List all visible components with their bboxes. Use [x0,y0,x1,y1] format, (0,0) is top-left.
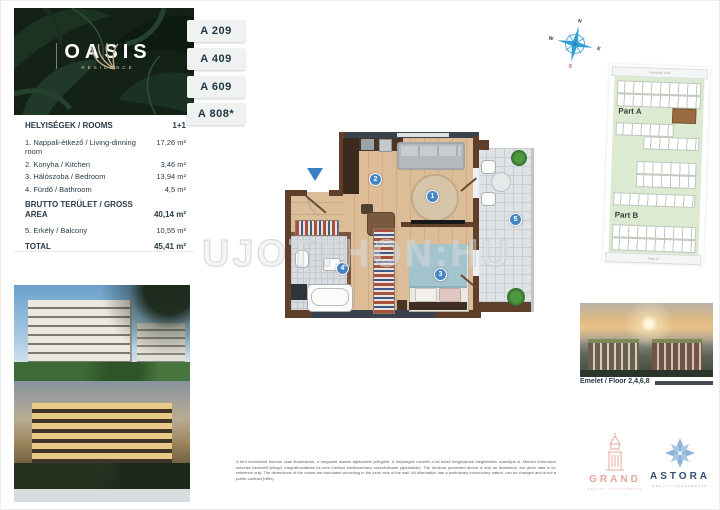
balcony-railing [531,148,534,312]
unit-tab-a808[interactable]: A 808* [187,103,245,125]
rooms-table: HELYISÉGEK / ROOMS 1+1 1. Nappali-étkező… [25,121,186,255]
compass-east: E [597,46,602,53]
room-label: 4. Fürdő / Bathroom [25,185,139,194]
tv-console [411,220,465,224]
photo-footer-strip [14,489,190,502]
aerial-render-photo [580,303,713,377]
grand-logo: GRAND REALTY INVESTMENTS [585,432,645,491]
bathtub [307,284,353,312]
balcony-table [491,172,511,192]
room-area: 3,46 m² [161,160,186,169]
building-render-photo-evening [14,381,190,489]
rooms-table-header: HELYISÉGEK / ROOMS 1+1 [25,121,186,131]
brand-header: OASIS RESIDENCE [14,8,194,115]
room-label: 3. Hálószoba / Bedroom [25,172,139,181]
compass-west: W [548,35,554,42]
balcony-area: 10,55 m² [156,226,186,235]
layout-type: 1+1 [172,121,186,131]
kitchen-cabinet-column [343,138,359,194]
plant [507,288,525,306]
astora-name: ASTORA [650,471,710,482]
room-area: 17,26 m² [156,138,186,147]
wall-entry-right [329,190,343,196]
grand-tower-icon [603,432,627,472]
balcony-row: 5. Erkély / Balcony 10,55 m² [25,226,186,235]
table-row: 1. Nappali-étkező / Living-dinning room … [25,138,186,157]
balcony-chair [481,160,496,174]
gross-area-row: BRUTTO TERÜLET / GROSS AREA 40,14 m² [25,200,186,220]
room-badge-living: 1 [426,190,439,203]
plant [511,150,527,166]
balcony-bottom-wall [477,302,533,312]
pillow [439,288,461,302]
panel-divider [14,251,194,252]
balcony-door-living [473,168,479,198]
window-top [397,133,449,137]
table-row: 3. Hálószoba / Bedroom 13,94 m² [25,172,186,181]
entrance-arrow-icon [307,168,323,181]
astora-star-icon [665,438,695,468]
sofa [397,142,465,170]
watermark: UJOTTHON:HU [202,233,512,276]
compass-rose [549,18,601,70]
building-row [616,122,674,137]
building-row [636,174,696,189]
floor-plan-datasheet: OASIS RESIDENCE A 209 A 409 A 609 A 808*… [0,0,720,510]
gross-label: BRUTTO TERÜLET / GROSS AREA [25,200,139,220]
sofa-cushions [401,146,461,156]
disclaimer-text: A fent bemutatott bútorok csak illusztrá… [236,459,556,481]
building-render-photo-day [14,285,190,381]
room-label: 1. Nappali-étkező / Living-dinning room [25,138,139,157]
brand-logo: OASIS RESIDENCE [14,42,194,70]
unit-tab-a409[interactable]: A 409 [187,48,245,70]
table-row: 4. Fürdő / Bathroom 4,5 m² [25,185,186,194]
compass-icon: N E W S [549,18,601,70]
building-row [643,136,699,151]
room-area: 4,5 m² [165,185,186,194]
astora-logo: ASTORA REALTY INVESTMENTS [648,438,712,488]
site-map-part-a: Part A [618,106,642,116]
site-map-part-b: Part B [615,210,639,220]
kitchen-sink [379,139,392,152]
aerial-foreground [580,370,713,377]
wall-entry-left [289,190,307,196]
floor-caption: Emelet / Floor 2,4,6,8 [580,378,650,385]
washing-machine [291,284,307,300]
grand-tagline: REALTY INVESTMENTS [587,487,642,491]
grand-name: GRAND [589,474,641,485]
render-building-lit [32,403,173,466]
balcony-corner-post [473,140,489,150]
room-area: 13,94 m² [156,172,186,181]
room-badge-balcony: 5 [509,213,522,226]
render-branch-overlay [14,285,190,381]
street-label-bottom: Tatai út [605,252,701,265]
floor-caption-bar [655,381,713,385]
site-map: Fiastyúk utca Part A Part B Tatai út [603,64,710,265]
palm-leaf-icon [14,42,194,70]
astora-tagline: REALTY INVESTMENTS [652,484,707,488]
gross-area: 40,14 m² [154,210,186,220]
bed-headboard [409,302,467,310]
stove [361,139,374,150]
room-badge-kitchen: 2 [369,173,382,186]
room-label: 2. Konyha / Kitchen [25,160,139,169]
floor-plan: 1 2 3 4 5 [285,132,545,332]
compass-south: S [568,63,573,70]
table-row: 2. Konyha / Kitchen 3,46 m² [25,160,186,169]
render-evening-trees [14,463,190,489]
unit-tab-a209[interactable]: A 209 [187,20,245,42]
balcony-chair [481,192,496,206]
highlighted-building [672,108,697,124]
unit-tab-a609[interactable]: A 609 [187,76,245,98]
pillow [415,288,437,302]
balcony-label: 5. Erkély / Balcony [25,226,139,235]
nightstand [397,300,407,310]
rooms-title: HELYISÉGEK / ROOMS [25,121,139,131]
wall-bottom-left [285,310,311,318]
compass-north: N [577,18,582,25]
bathtub-basin [311,288,349,306]
